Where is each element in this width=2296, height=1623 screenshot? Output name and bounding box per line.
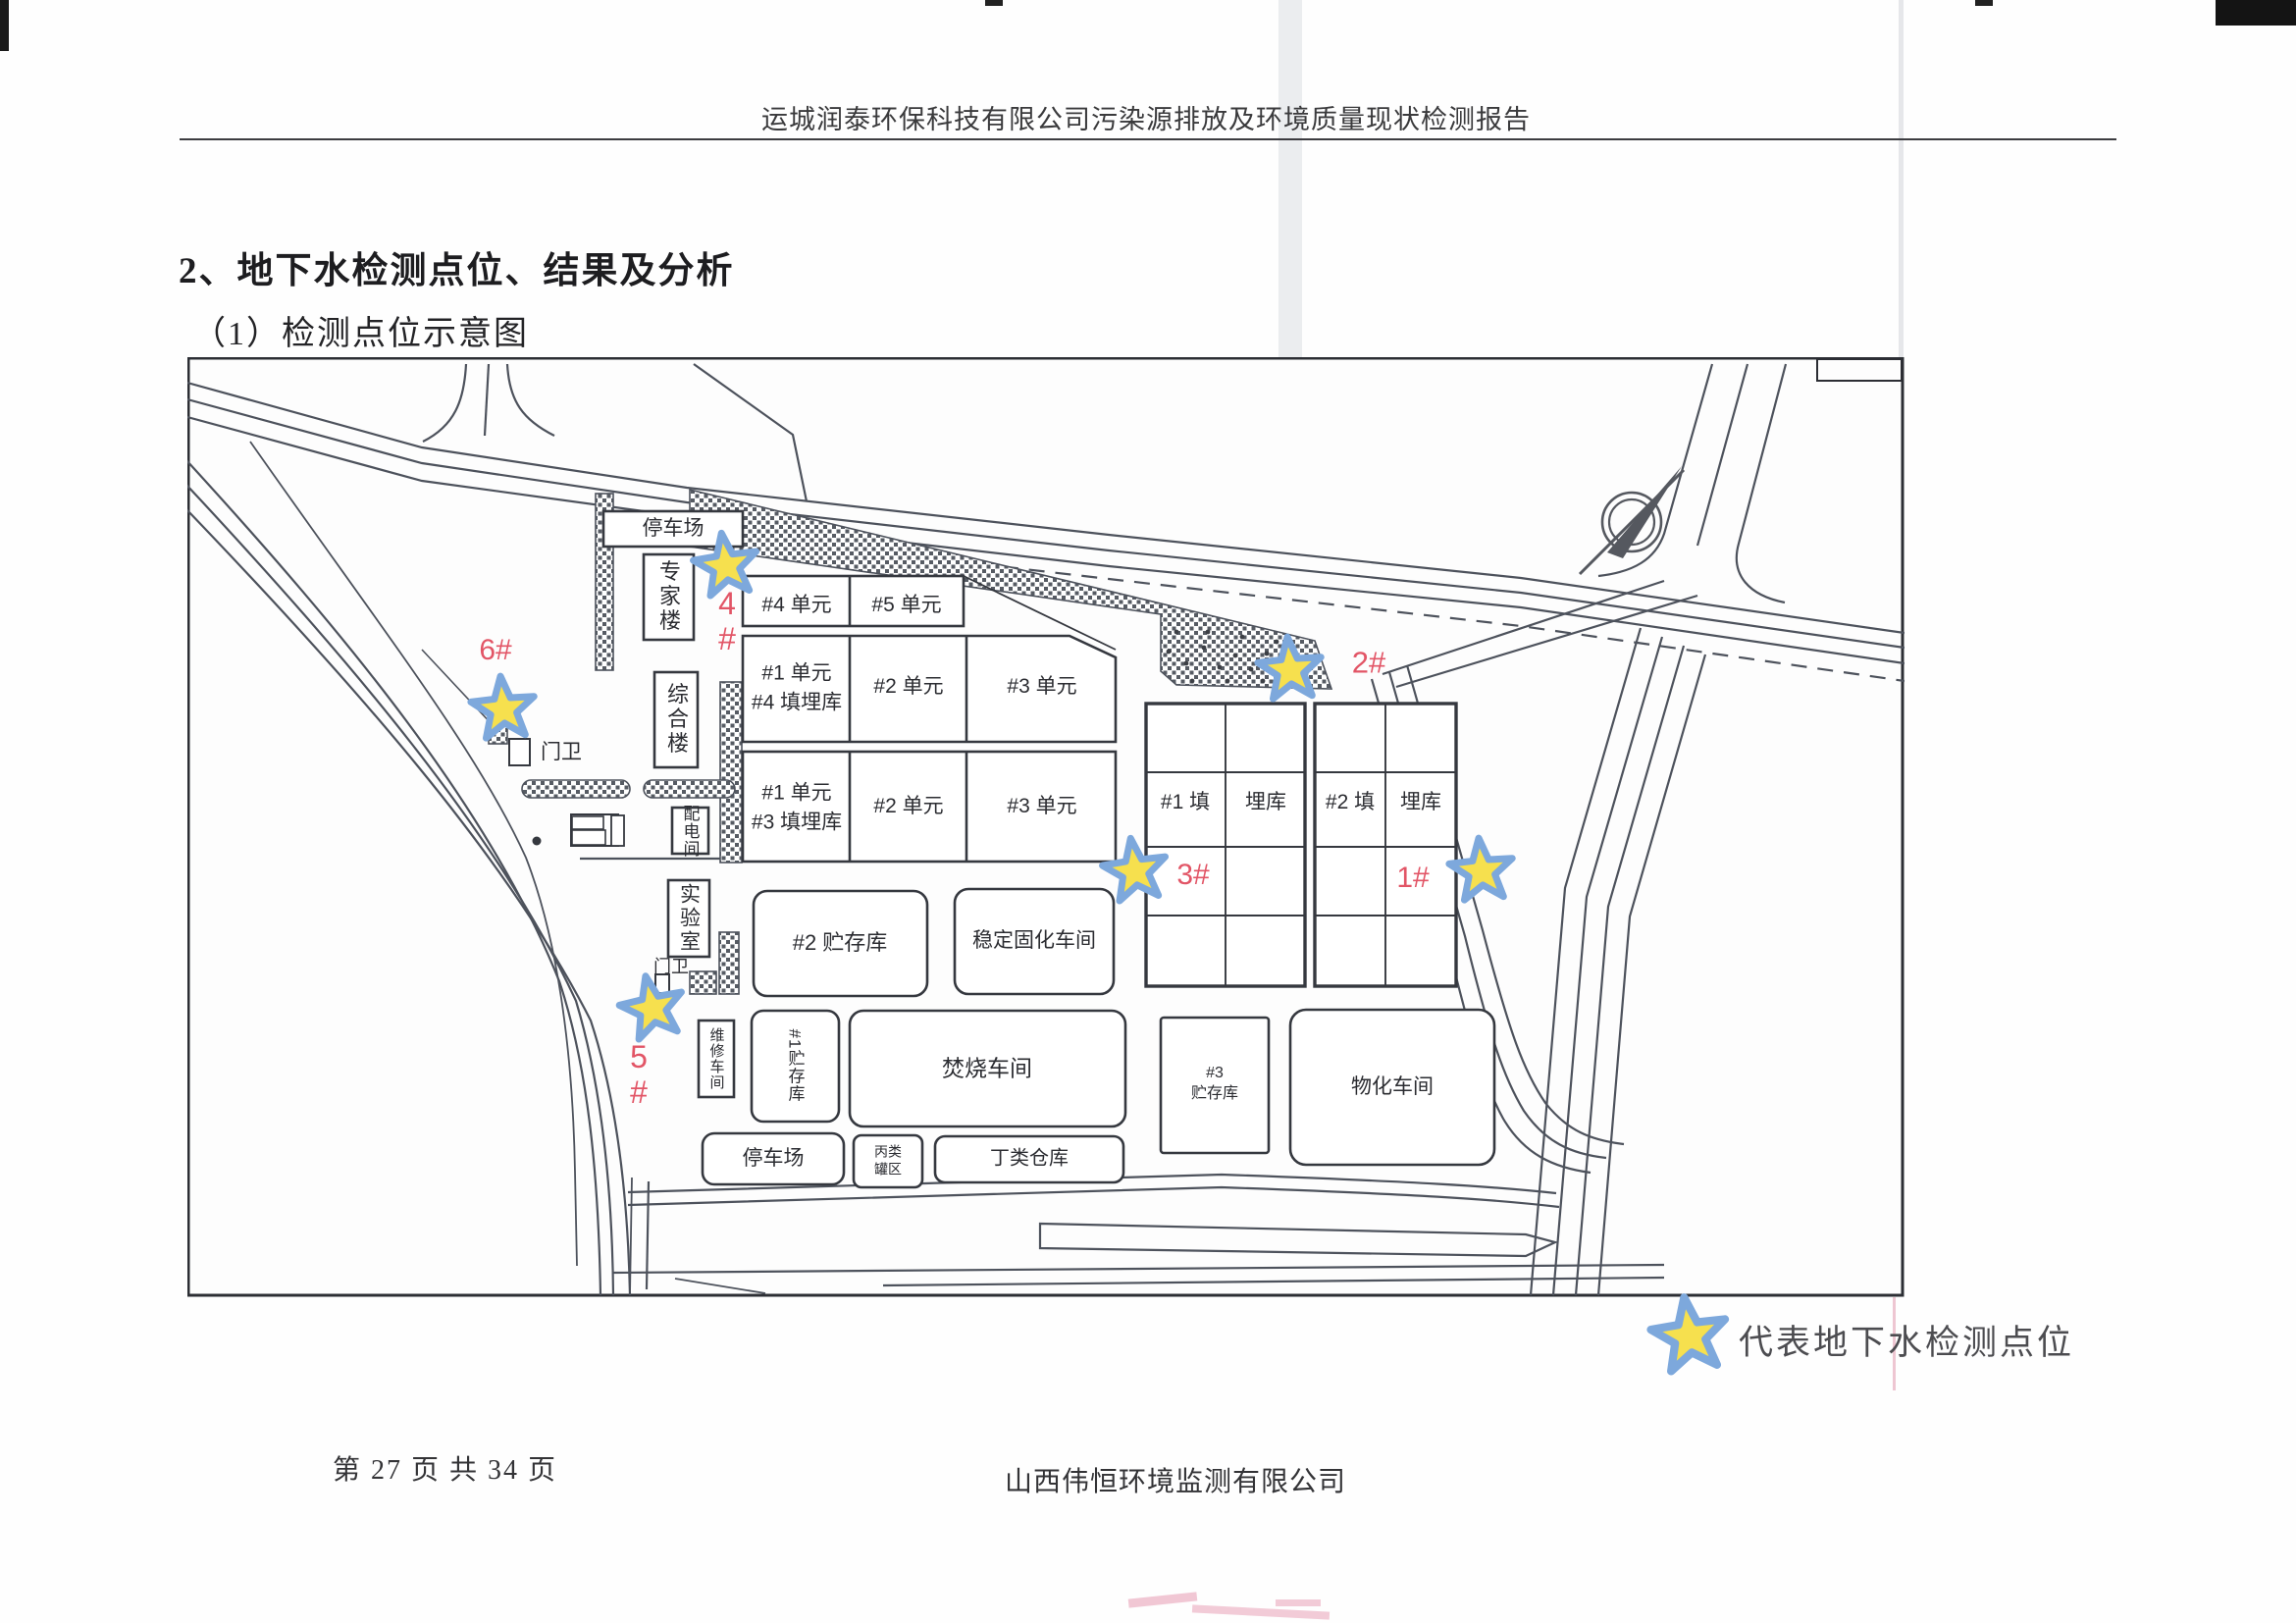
legend-star-icon	[1647, 1292, 1732, 1373]
scan-pink-mark	[1276, 1599, 1321, 1606]
label-landfill-1b: 埋库	[1245, 788, 1286, 817]
label-unit-r3c2: #2 单元	[873, 792, 943, 821]
label-storage-3: #3 贮存库	[1191, 1064, 1238, 1105]
scan-pink-mark	[1128, 1592, 1198, 1607]
label-storage-1: #1贮存库	[787, 1029, 804, 1103]
monitoring-star-icon-5	[614, 969, 689, 1042]
header-rule	[180, 138, 2116, 140]
scan-band	[1278, 0, 1302, 359]
label-unit-r3c3: #3 单元	[1007, 792, 1076, 821]
label-expert-building: 专家楼	[657, 560, 679, 634]
label-unit-r3c1: #1 单元 #3 填埋库	[752, 779, 842, 839]
point-label-2: 2#	[1352, 647, 1385, 681]
label-landfill-2a: #2 填	[1326, 788, 1375, 817]
point-label-5: 5 #	[630, 1040, 648, 1111]
page-number: 第 27 页 共 34 页	[333, 1448, 557, 1488]
scan-corner	[2216, 0, 2296, 26]
label-stabilization-workshop: 稳定固化车间	[972, 926, 1096, 956]
label-storage-2: #2 贮存库	[793, 927, 888, 959]
point-label-1: 1#	[1396, 862, 1429, 895]
label-unit-r1c2: #5 单元	[871, 591, 941, 620]
site-map: 停车场 专家楼 综合楼 配电间 实验室 门卫 门卫 维修车间 #1贮存库 #2 …	[187, 357, 1905, 1297]
section-subtitle: （1）检测点位示意图	[192, 306, 529, 354]
label-parking-top: 停车场	[643, 514, 704, 544]
point-label-3: 3#	[1176, 859, 1209, 892]
section-title: 2、地下水检测点位、结果及分析	[179, 240, 735, 293]
label-unit-r2c3: #3 单元	[1007, 672, 1076, 702]
label-physchem-workshop: 物化车间	[1351, 1073, 1434, 1102]
label-class-d-warehouse: 丁类仓库	[990, 1145, 1069, 1174]
label-gate-upper: 门卫	[541, 738, 582, 767]
label-gate-lower: 门卫	[653, 954, 689, 979]
report-page: 运城润泰环保科技有限公司污染源排放及环境质量现状检测报告 2、地下水检测点位、结…	[0, 0, 2296, 1623]
label-unit-r2c2: #2 单元	[873, 672, 943, 702]
label-incineration-workshop: 焚烧车间	[942, 1052, 1032, 1084]
report-header-text: 运城润泰环保科技有限公司污染源排放及环境质量现状检测报告	[761, 105, 1531, 134]
scan-line	[1899, 0, 1904, 359]
legend-star	[1641, 1285, 1739, 1384]
label-maintenance-workshop: 维修车间	[709, 1027, 724, 1090]
label-unit-r2c1: #1 单元 #4 填埋库	[752, 659, 842, 719]
label-power-room: 配电间	[682, 805, 699, 858]
label-landfill-1a: #1 填	[1161, 788, 1210, 817]
legend-label: 代表地下水检测点位	[1739, 1315, 2074, 1365]
label-unit-r1c1: #4 单元	[761, 591, 831, 620]
scan-dash	[1975, 0, 1993, 6]
scan-pink-mark	[1192, 1604, 1330, 1619]
label-class-c-tank: 丙类 罐区	[874, 1144, 902, 1178]
scan-edge	[0, 0, 9, 51]
map-dot	[533, 837, 542, 846]
report-header: 运城润泰环保科技有限公司污染源排放及环境质量现状检测报告	[0, 98, 2292, 136]
landfill-grid	[1146, 704, 1456, 986]
label-laboratory: 实验室	[679, 883, 700, 954]
scan-dash	[985, 0, 1003, 6]
point-label-6: 6#	[479, 634, 511, 667]
point-label-4: 4 #	[718, 587, 736, 657]
label-parking-bottom: 停车场	[743, 1144, 805, 1174]
footer-company: 山西伟恒环境监测有限公司	[1005, 1460, 1346, 1499]
label-landfill-2b: 埋库	[1400, 788, 1441, 817]
label-comprehensive-building: 综合楼	[665, 683, 687, 757]
